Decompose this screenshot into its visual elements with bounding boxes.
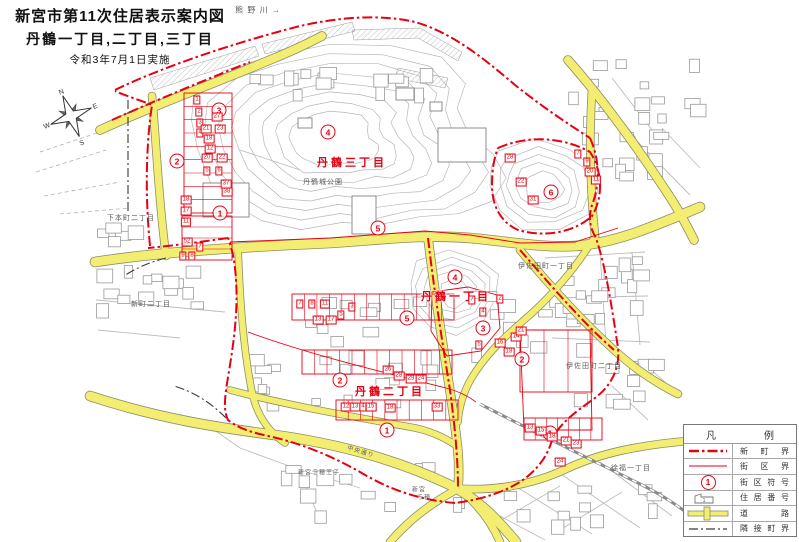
map-canvas: 熊 野 川 →丹鶴城公園下本町二丁目新町二丁目伊佐田町一丁目伊佐田町二丁目徐福一… — [0, 0, 799, 542]
new-town-boundary-symbol — [684, 444, 733, 458]
compass-e: E — [92, 103, 99, 111]
title-block: 新宮市第11次住居表示案内図 丹鶴一丁目,二丁目,三丁目 令和3年7月1日実施 — [10, 5, 230, 67]
legend-row-new-town: 新町界 — [684, 444, 796, 459]
house-number-symbol: 1 — [684, 491, 733, 505]
compass-w: W — [43, 122, 52, 131]
legend-row-adjacent: 隣接町界 — [684, 522, 796, 536]
large-buildings — [203, 88, 486, 234]
legend-row-block-symbol: 1 街区符号 — [684, 475, 796, 491]
legend-row-house-number: 1 住居番号 — [684, 491, 796, 506]
block-boundary-symbol — [684, 459, 733, 473]
block-symbol-sample: 1 — [684, 475, 733, 490]
map-subtitle: 丹鶴一丁目,二丁目,三丁目 — [10, 29, 230, 49]
legend-box: 凡例 新町界 街区界 1 街区符号 1 — [683, 424, 797, 537]
map-title: 新宮市第11次住居表示案内図 — [10, 5, 230, 26]
base-map-svg — [0, 0, 799, 542]
compass-s: S — [79, 139, 86, 147]
compass-n: N — [58, 88, 65, 96]
legend-row-road: 道路 — [684, 506, 796, 522]
legend-title: 凡例 — [684, 425, 796, 444]
map-date: 令和3年7月1日実施 — [10, 52, 230, 67]
road-symbol — [684, 506, 733, 521]
legend-row-block-boundary: 街区界 — [684, 459, 796, 474]
compass-main-star — [42, 88, 99, 145]
contour-lines — [192, 44, 598, 335]
adjacent-boundary-symbol — [684, 522, 733, 536]
svg-text:1: 1 — [703, 498, 706, 504]
